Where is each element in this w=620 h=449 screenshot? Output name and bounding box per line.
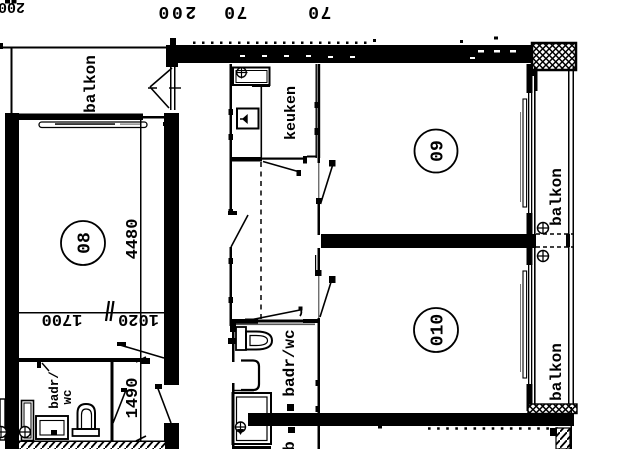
svg-text:balkon: balkon (548, 168, 566, 226)
svg-text:balkon: balkon (548, 343, 566, 401)
svg-text:1020: 1020 (118, 309, 159, 328)
svg-text:b: b (281, 441, 299, 449)
svg-text:09: 09 (429, 140, 449, 162)
svg-text:badr/: badr/ (48, 371, 62, 409)
svg-text:70: 70 (223, 1, 248, 21)
svg-text:badr/wc: badr/wc (281, 329, 299, 396)
svg-text:keuken: keuken (283, 86, 300, 140)
svg-text:08: 08 (76, 232, 96, 254)
svg-text:4480: 4480 (124, 219, 143, 260)
svg-text:010: 010 (429, 314, 449, 346)
svg-text:70: 70 (307, 1, 332, 21)
svg-text:balkon: balkon (82, 55, 100, 113)
svg-text:wc: wc (61, 389, 75, 404)
svg-text:200: 200 (156, 1, 197, 21)
svg-text:1700: 1700 (42, 309, 83, 328)
svg-text:1490: 1490 (124, 378, 143, 419)
